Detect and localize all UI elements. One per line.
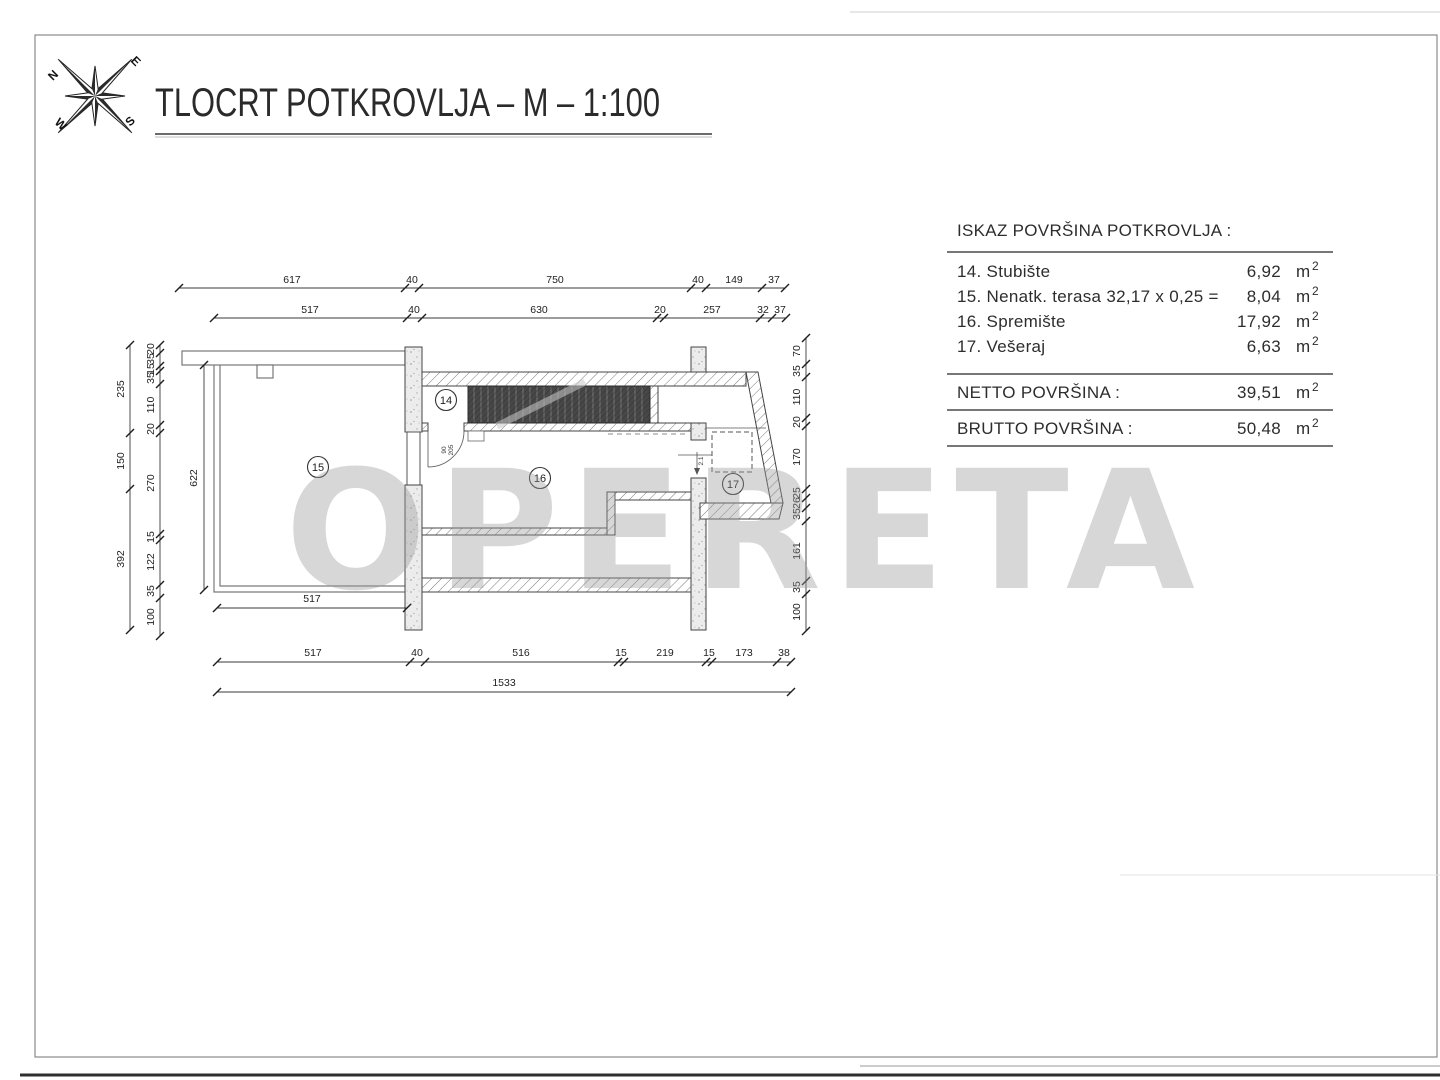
wall-stair-right [650, 386, 658, 423]
stair-block [468, 382, 650, 426]
svg-text:35: 35 [145, 585, 157, 597]
table-row-value: 6,63 [1247, 337, 1281, 356]
netto-label: NETTO POVRŠINA : [957, 383, 1120, 402]
table-row-unit: m [1296, 312, 1310, 331]
table-row-unit-exp: 2 [1312, 309, 1319, 323]
svg-text:173: 173 [735, 647, 753, 659]
svg-text:270: 270 [145, 474, 157, 492]
room-badge-14: 14 [436, 390, 457, 411]
svg-text:630: 630 [530, 304, 548, 316]
table-row-value: 17,92 [1237, 312, 1281, 331]
brutto-unit: m [1296, 419, 1310, 438]
svg-text:517: 517 [301, 304, 319, 316]
terrace-roof-edge [182, 351, 405, 365]
svg-text:122: 122 [145, 553, 157, 571]
table-row-unit-exp: 2 [1312, 334, 1319, 348]
svg-text:750: 750 [546, 274, 564, 286]
svg-text:617: 617 [283, 274, 301, 286]
svg-text:37: 37 [774, 304, 786, 316]
svg-text:235: 235 [115, 380, 127, 398]
table-row-unit: m [1296, 337, 1310, 356]
svg-text:35: 35 [791, 365, 803, 377]
svg-text:15: 15 [615, 647, 627, 659]
svg-text:15: 15 [703, 647, 715, 659]
svg-text:392: 392 [115, 550, 127, 568]
floor-plan-svg: N E S W TLOCRT POTKROVLJA – M – 1:100 [0, 0, 1440, 1080]
netto-unit-exp: 2 [1312, 380, 1319, 394]
svg-text:149: 149 [725, 274, 743, 286]
svg-text:35: 35 [145, 353, 157, 365]
svg-text:516: 516 [512, 647, 530, 659]
table-row-unit-exp: 2 [1312, 259, 1319, 273]
table-row-unit: m [1296, 287, 1310, 306]
page-title: TLOCRT POTKROVLJA – M – 1:100 [155, 81, 660, 125]
svg-text:517: 517 [304, 647, 322, 659]
svg-text:40: 40 [406, 274, 418, 286]
brutto-unit-exp: 2 [1312, 416, 1319, 430]
table-row-value: 6,92 [1247, 262, 1281, 281]
svg-text:70: 70 [791, 345, 803, 357]
areas-table-header: ISKAZ POVRŠINA POTKROVLJA : [957, 221, 1232, 240]
table-row-label: 17. Vešeraj [957, 337, 1045, 356]
compass-rose-icon: N E S W [45, 53, 143, 133]
brutto-label: BRUTTO POVRŠINA : [957, 419, 1133, 438]
svg-text:14: 14 [440, 395, 452, 407]
svg-text:37: 37 [768, 274, 780, 286]
netto-unit: m [1296, 383, 1310, 402]
svg-text:257: 257 [703, 304, 721, 316]
brutto-value: 50,48 [1237, 419, 1281, 438]
table-row-value: 8,04 [1247, 287, 1281, 306]
svg-text:20: 20 [145, 343, 157, 355]
svg-text:20: 20 [791, 416, 803, 428]
svg-text:1533: 1533 [492, 677, 516, 689]
svg-text:100: 100 [145, 608, 157, 626]
compass-east-label: E [128, 53, 144, 69]
netto-value: 39,51 [1237, 383, 1281, 402]
svg-text:35: 35 [145, 372, 157, 384]
svg-text:219: 219 [656, 647, 674, 659]
title-block: TLOCRT POTKROVLJA – M – 1:100 [155, 81, 712, 137]
table-row-label: 14. Stubište [957, 262, 1050, 281]
svg-text:20: 20 [654, 304, 666, 316]
compass-west-label: W [52, 115, 70, 133]
areas-table-rows: 14. Stubište6,92m215. Nenatk. terasa 32,… [957, 259, 1319, 356]
svg-text:38: 38 [778, 647, 790, 659]
svg-text:20: 20 [145, 423, 157, 435]
wall-strip-left [422, 423, 428, 431]
table-row-unit-exp: 2 [1312, 284, 1319, 298]
drawing-sheet: N E S W TLOCRT POTKROVLJA – M – 1:100 [0, 0, 1440, 1080]
svg-text:622: 622 [188, 469, 200, 487]
areas-table: ISKAZ POVRŠINA POTKROVLJA : 14. Stubište… [947, 221, 1333, 446]
watermark: OPERETA [285, 435, 1205, 627]
svg-text:40: 40 [692, 274, 704, 286]
svg-text:110: 110 [791, 388, 803, 405]
svg-text:40: 40 [408, 304, 420, 316]
table-row-label: 16. Spremište [957, 312, 1066, 331]
wall-left-upper [405, 347, 422, 432]
svg-text:150: 150 [115, 452, 127, 470]
compass-north-label: N [45, 67, 61, 83]
svg-text:110: 110 [145, 396, 157, 413]
svg-text:40: 40 [411, 647, 423, 659]
svg-text:32: 32 [757, 304, 769, 316]
svg-text:15: 15 [145, 531, 157, 543]
table-row-unit: m [1296, 262, 1310, 281]
table-row-label: 15. Nenatk. terasa 32,17 x 0,25 = [957, 287, 1219, 306]
terrace-notch [257, 365, 273, 378]
pier-top-right [691, 347, 706, 372]
